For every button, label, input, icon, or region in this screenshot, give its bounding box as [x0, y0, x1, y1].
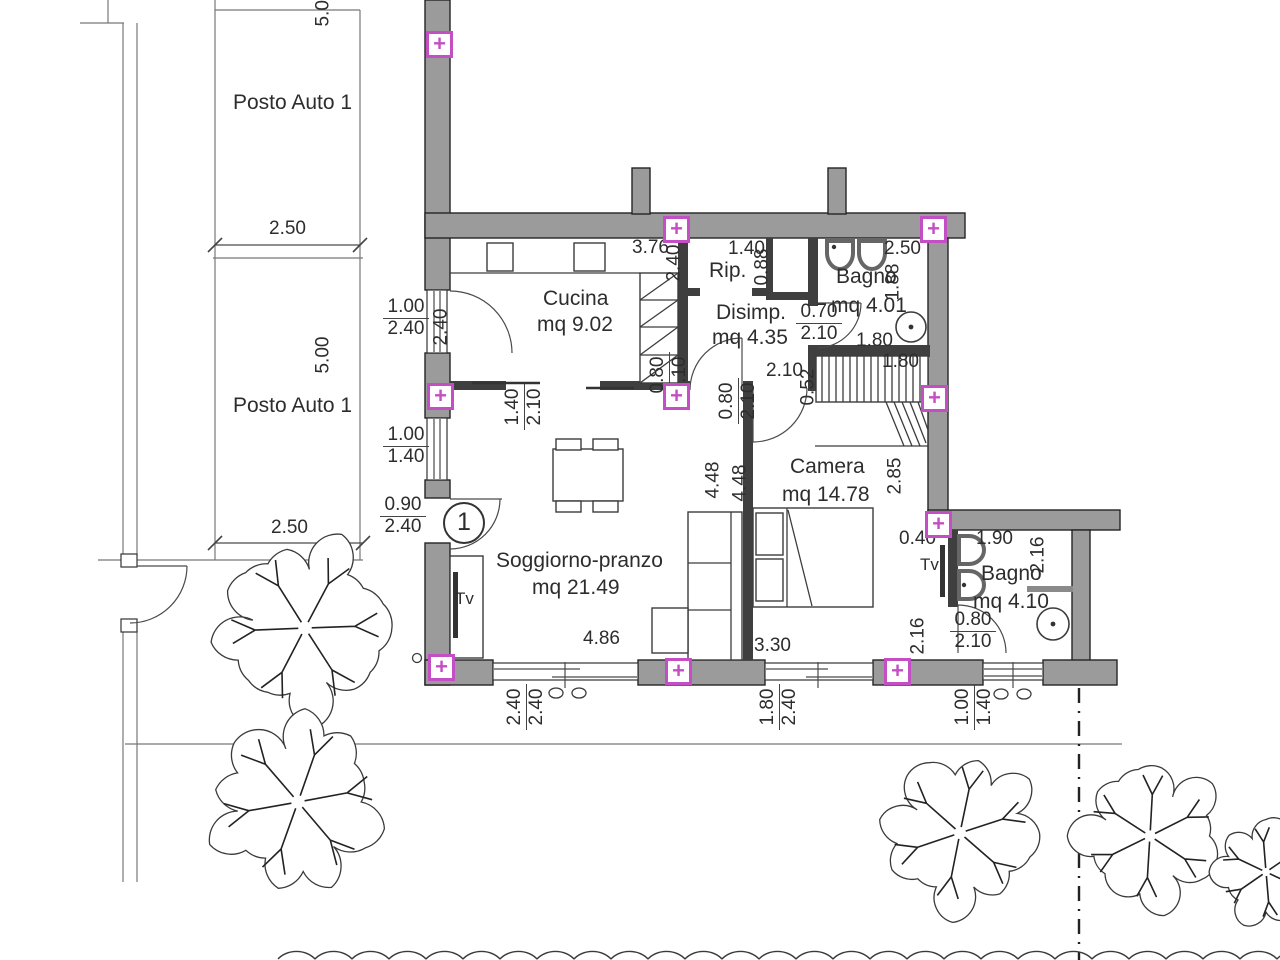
- area-cucina: mq 9.02: [537, 314, 613, 337]
- plus-marker-icon: +: [427, 383, 454, 410]
- door-bagno2-dimension: 0.802.10: [950, 610, 996, 653]
- dim-bagno1-low: 1.80: [856, 331, 893, 352]
- dim-bagno2-door-side: 2.16: [908, 618, 929, 655]
- open-cucina-sogg-dimension: 1.402.10: [503, 384, 543, 430]
- dim-wardrobe: 1.80: [882, 352, 919, 373]
- room-rip: Rip.: [709, 260, 746, 283]
- plus-marker-icon: +: [428, 654, 455, 681]
- win-sogg-bottom-dimension: 2.402.40: [505, 684, 545, 730]
- room-soggiorno: Soggiorno-pranzo: [496, 550, 663, 573]
- dim-bagno1-width: 2.50: [884, 239, 921, 260]
- plus-marker-icon: +: [665, 658, 692, 685]
- tree-icon: [1209, 818, 1280, 926]
- room-posto-auto-1b: Posto Auto 1: [233, 395, 352, 418]
- dim-stall-depth: 5.00: [313, 337, 334, 374]
- win-soggiorno-left-dimension: 1.001.40: [383, 425, 429, 468]
- area-soggiorno: mq 21.49: [532, 577, 620, 600]
- gate: [121, 554, 187, 632]
- hedge-icon: [278, 951, 1280, 959]
- dim-shaft: 0.88: [752, 249, 773, 286]
- plan-drawing: [0, 0, 1280, 960]
- dim-stall-bottom: 2.50: [271, 518, 308, 539]
- plus-marker-icon: +: [925, 511, 952, 538]
- room-bagno2: Bagno: [981, 563, 1042, 586]
- dim-sogg-depth: 4.48: [703, 462, 724, 499]
- area-camera: mq 14.78: [782, 484, 870, 507]
- room-disimp: Disimp.: [716, 302, 786, 325]
- tree-icon: [880, 761, 1040, 923]
- door-bagno1-dimension: 0.702.10: [796, 302, 842, 345]
- tv-soggiorno: Tv: [455, 590, 474, 608]
- dim-bagno2-width: 1.90: [976, 529, 1013, 550]
- hedge-row: [278, 951, 1280, 959]
- plus-marker-icon: +: [426, 31, 453, 58]
- floor-plan: Posto Auto 1Posto Auto 12.502.505.05.003…: [0, 0, 1280, 960]
- unit-number-badge: 1: [443, 502, 485, 544]
- dim-camera-right: 2.85: [885, 458, 906, 495]
- plus-marker-icon: +: [663, 383, 690, 410]
- plus-marker-icon: +: [921, 385, 948, 412]
- dim-cucina-door: 2.40: [431, 309, 452, 346]
- win-camera-bottom-dimension: 1.802.40: [758, 684, 798, 730]
- wc-dot: [832, 245, 836, 249]
- room-cucina: Cucina: [543, 288, 608, 311]
- door-camera-dimension: 0.802.10: [717, 378, 757, 424]
- dim-camera-width: 3.30: [754, 636, 791, 657]
- room-camera: Camera: [790, 456, 865, 479]
- plus-marker-icon: +: [884, 658, 911, 685]
- dim-bagno1-depth: 1.88: [883, 264, 904, 301]
- area-disimp: mq 4.35: [712, 327, 788, 350]
- tv-camera: Tv: [920, 556, 939, 574]
- win-bagno2-bottom-dimension: 1.001.40: [953, 684, 993, 730]
- dim-wardrobe-depth: 0.52: [798, 369, 819, 406]
- dim-rip-depth: 2.40: [664, 245, 685, 282]
- dim-stall-top: 2.50: [269, 219, 306, 240]
- dim-camera-depth: 4.48: [730, 465, 751, 502]
- room-posto-auto-1a: Posto Auto 1: [233, 92, 352, 115]
- door-entrance-dimension: 0.902.40: [380, 495, 426, 538]
- win-cucina-dimension: 1.002.40: [383, 297, 429, 340]
- dim-sogg-width: 4.86: [583, 629, 620, 650]
- plus-marker-icon: +: [920, 216, 947, 243]
- tree-icon: [209, 709, 384, 889]
- plus-marker-icon: +: [663, 216, 690, 243]
- dim-stall-depth-top: 5.0: [313, 0, 334, 26]
